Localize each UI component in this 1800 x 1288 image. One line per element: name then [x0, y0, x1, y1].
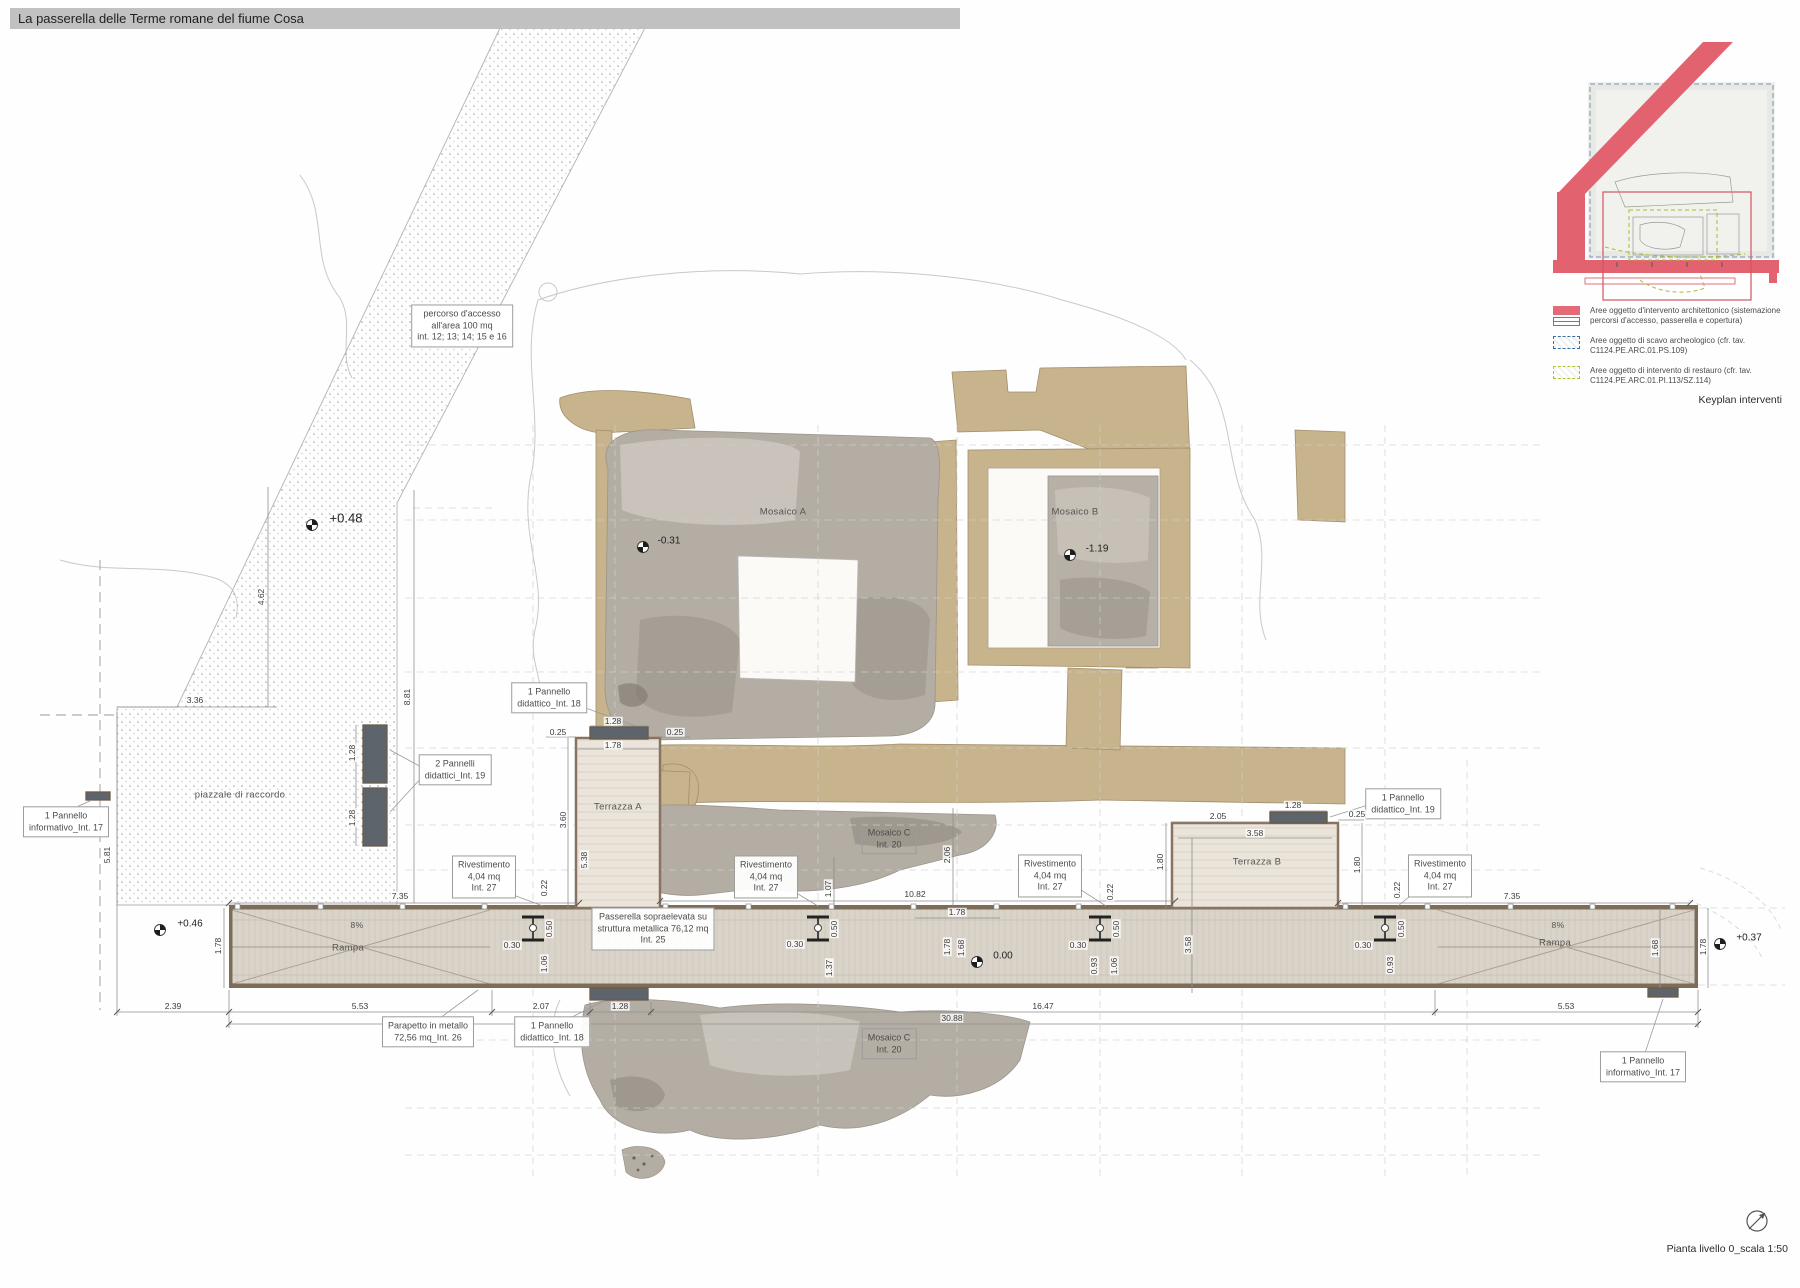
keyplan-legend: Aree oggetto d'intervento architettonico…	[1553, 306, 1785, 395]
legend-row-restauro: Aree oggetto di intervento di restauro (…	[1553, 366, 1785, 387]
dim-207: 2.07	[532, 1002, 551, 1011]
dim-178-wl: 1.78	[214, 937, 223, 956]
label-rampa-right: Rampa	[1539, 938, 1571, 949]
north-symbol	[1747, 1211, 1767, 1231]
level-zero: 0.00	[993, 951, 1012, 962]
dim-180-r: 1.80	[1353, 856, 1362, 875]
dim-093-2: 0.93	[1386, 956, 1395, 975]
dim-178-w: 1.78	[948, 908, 967, 917]
label-rivestimento-2: Rivestimento 4,04 mq Int. 27	[734, 855, 798, 898]
dim-093-1: 0.93	[1090, 957, 1099, 976]
plan-graphics	[0, 0, 1800, 1288]
dim-178-wr: 1.78	[1699, 938, 1708, 957]
dim-025-l: 0.25	[549, 728, 568, 737]
label-pannello-informativo-17-right: 1 Pannello informativo_Int. 17	[1600, 1051, 1686, 1082]
legend-text-restauro: Aree oggetto di intervento di restauro (…	[1590, 366, 1785, 387]
keyplan-graphic	[1553, 42, 1779, 300]
keyplan-caption: Keyplan interventi	[1699, 394, 1782, 406]
label-rivestimento-4: Rivestimento 4,04 mq Int. 27	[1408, 854, 1472, 897]
dim-106-2: 1.06	[1110, 957, 1119, 976]
dim-022-3: 0.22	[1393, 881, 1402, 900]
dim-178-wm: 1.78	[943, 938, 952, 957]
dim-128-p2: 1.28	[348, 809, 357, 828]
label-mosaico-b: Mosaico B	[1051, 507, 1098, 518]
dim-128-tb: 1.28	[1284, 801, 1303, 810]
level-plus048: +0.48	[330, 511, 363, 526]
dim-025-tb: 0.25	[1348, 810, 1367, 819]
dim-178-ta: 1.78	[604, 741, 623, 750]
dim-168-m: 1.68	[957, 939, 966, 958]
dim-581: 5.81	[103, 846, 112, 865]
legend-row-intervento: Aree oggetto d'intervento architettonico…	[1553, 306, 1785, 327]
dim-358-v: 3.58	[1184, 936, 1193, 955]
label-slope-right: 8%	[1552, 920, 1565, 930]
label-rivestimento-3: Rivestimento 4,04 mq Int. 27	[1018, 854, 1082, 897]
label-mosaico-a: Mosaico A	[760, 507, 807, 518]
dim-462: 4.62	[257, 588, 266, 607]
dim-050-3: 0.50	[1112, 920, 1121, 939]
drawing-sheet: La passerella delle Terme romane del fiu…	[0, 0, 1800, 1288]
label-mosaico-c-lower: Mosaico C Int. 20	[862, 1028, 917, 1059]
legend-text-scavo: Aree oggetto di scavo archeologico (cfr.…	[1590, 336, 1785, 357]
label-pannello-informativo-17-left: 1 Pannello informativo_Int. 17	[23, 806, 109, 837]
label-terrazza-b: Terrazza B	[1233, 857, 1281, 868]
label-piazzale: piazzale di raccordo	[195, 790, 286, 801]
dim-358-tb: 3.58	[1246, 829, 1265, 838]
level-plus037: +0.37	[1736, 933, 1761, 944]
label-pannello-didattico-18-lower: 1 Pannello didattico_Int. 18	[514, 1016, 590, 1047]
dim-128-p1: 1.28	[348, 744, 357, 763]
legend-row-scavo: Aree oggetto di scavo archeologico (cfr.…	[1553, 336, 1785, 357]
legend-swatch-restauro	[1553, 366, 1580, 387]
dim-137: 1.37	[825, 959, 834, 978]
label-pannello-didattico-19-right: 1 Pannello didattico_Int. 19	[1365, 788, 1441, 819]
terrazza-a-shape	[576, 727, 660, 908]
dim-553-l: 5.53	[351, 1002, 370, 1011]
dim-128-ta: 1.28	[604, 717, 623, 726]
dim-360: 3.60	[559, 811, 568, 830]
mosaico-a-area	[605, 430, 940, 740]
dim-030-1: 0.30	[503, 941, 522, 950]
dim-050-1: 0.50	[545, 920, 554, 939]
dim-025-r: 0.25	[666, 728, 685, 737]
dim-106-1: 1.06	[540, 955, 549, 974]
sheet-caption: Pianta livello 0_scala 1:50	[1667, 1243, 1788, 1255]
dim-205: 2.05	[1209, 812, 1228, 821]
dim-030-2: 0.30	[786, 940, 805, 949]
dim-107: 1.07	[824, 880, 833, 899]
label-slope-left: 8%	[351, 920, 364, 930]
label-rivestimento-1: Rivestimento 4,04 mq Int. 27	[452, 855, 516, 898]
label-percorso-accesso: percorso d'accesso all'area 100 mq int. …	[411, 304, 513, 347]
dim-050-2: 0.50	[830, 920, 839, 939]
sheet-title: La passerella delle Terme romane del fiu…	[18, 11, 304, 26]
label-parapetto-26: Parapetto in metallo 72,56 mq_Int. 26	[382, 1016, 474, 1047]
dim-1082: 10.82	[903, 890, 926, 899]
level-minus119: -1.19	[1086, 544, 1109, 555]
legend-swatch-scavo	[1553, 336, 1580, 357]
dim-1647: 16.47	[1031, 1002, 1054, 1011]
dim-128-b: 1.28	[611, 1002, 630, 1011]
dim-881: 8.81	[403, 688, 412, 707]
label-terrazza-a: Terrazza A	[594, 802, 642, 813]
dim-180-l: 1.80	[1156, 853, 1165, 872]
dim-022-2: 0.22	[1106, 883, 1115, 902]
label-passerella-25: Passerella sopraelevata su struttura met…	[591, 907, 714, 950]
label-mosaico-c-upper: Mosaico C Int. 20	[862, 823, 917, 854]
mosaico-c-lower	[581, 999, 1030, 1178]
dim-735-r: 7.35	[1503, 892, 1522, 901]
legend-text-intervento: Aree oggetto d'intervento architettonico…	[1590, 306, 1785, 327]
dim-030-4: 0.30	[1354, 941, 1373, 950]
dim-239: 2.39	[164, 1002, 183, 1011]
sheet-title-bar: La passerella delle Terme romane del fiu…	[10, 8, 960, 29]
level-plus046: +0.46	[177, 919, 202, 930]
dim-336: 3.36	[186, 696, 205, 705]
dim-168-r: 1.68	[1651, 939, 1660, 958]
dim-538: 5.38	[580, 851, 589, 870]
label-rampa-left: Rampa	[332, 943, 364, 954]
dim-735-l: 7.35	[391, 892, 410, 901]
legend-swatch-intervento	[1553, 306, 1580, 327]
level-minus031: -0.31	[658, 536, 681, 547]
dim-030-3: 0.30	[1069, 941, 1088, 950]
dim-3088: 30.88	[940, 1014, 963, 1023]
dim-050-4: 0.50	[1397, 920, 1406, 939]
dim-206: 2.06	[943, 846, 952, 865]
label-pannelli-didattici-19: 2 Pannelli didattici_Int. 19	[419, 754, 492, 785]
dim-022-1: 0.22	[540, 879, 549, 898]
dim-553-r: 5.53	[1557, 1002, 1576, 1011]
label-pannello-didattico-18-upper: 1 Pannello didattico_Int. 18	[511, 682, 587, 713]
